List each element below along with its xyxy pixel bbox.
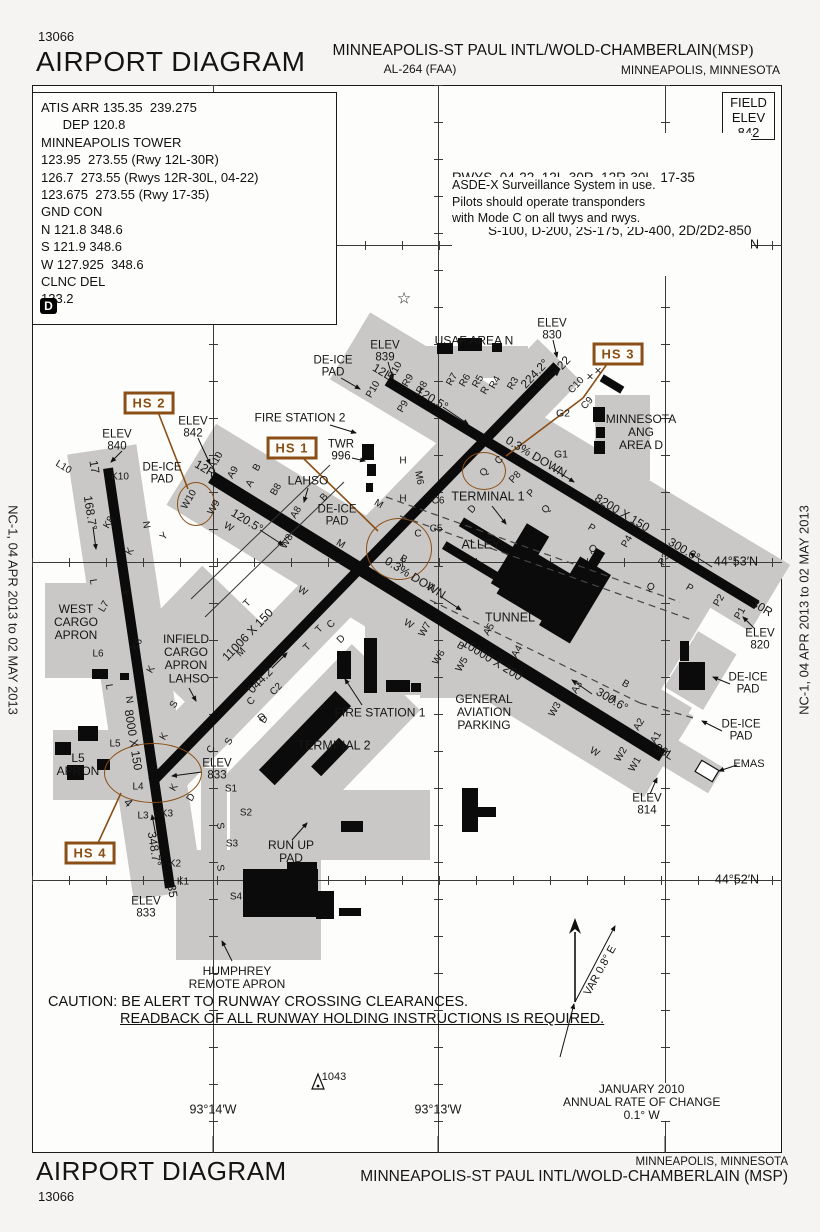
airport-diagram-page: 13066 AIRPORT DIAGRAM MINNEAPOLIS-ST PAU…: [0, 0, 820, 1232]
run-up-pad: RUN UP PAD: [268, 839, 314, 865]
beacon-star-icon: ☆: [397, 290, 411, 307]
ang-stub: [600, 374, 625, 393]
lon-93-13 whitebg: 93°13′W: [415, 1103, 462, 1116]
twy-m6: M6: [412, 470, 425, 485]
twy-h1: H: [399, 457, 406, 468]
obstacle-x1: ×: [586, 371, 593, 384]
twr-996: TWR 996: [328, 439, 354, 464]
elev-814: ELEV 814: [632, 793, 661, 818]
hs4-box: HS 4: [65, 842, 116, 865]
usaf-area-n: USAF AREA N: [435, 335, 514, 348]
elev-820: ELEV 820: [745, 628, 774, 653]
twy-n1: N: [139, 521, 151, 530]
tunnel whitebg: TUNNEL: [485, 611, 535, 624]
caution-line1: CAUTION: BE ALERT TO RUNWAY CROSSING CLE…: [48, 994, 468, 1010]
obstacle-1043: 1043: [322, 1072, 346, 1084]
building: [593, 407, 605, 422]
elev-833-s: ELEV 833: [131, 896, 160, 921]
emas: EMAS: [733, 759, 764, 771]
twy-l3: L3: [137, 812, 148, 823]
edge-text-left: NC-1, 04 APR 2013 to 02 MAY 2013: [6, 505, 21, 715]
edge-text-right: NC-1, 04 APR 2013 to 02 MAY 2013: [797, 505, 812, 715]
lahso-north: LAHSO: [288, 475, 329, 488]
building: [339, 908, 361, 916]
twy-k10: K10: [111, 473, 129, 484]
taxiway-pavement: [230, 790, 430, 860]
twy-g1: G1: [554, 449, 568, 460]
leader-arrow: [702, 721, 722, 731]
twy-d5: D: [336, 634, 349, 647]
infield-cargo-apron whitebg: INFIELD CARGO APRON: [163, 633, 209, 671]
building: [341, 821, 363, 832]
asdex-note: ASDE-X Surveillance System in use. Pilot…: [452, 177, 656, 227]
rwy-num-17: 17: [87, 459, 102, 474]
twy-s1: S1: [225, 785, 237, 796]
annual-rate-label: JANUARY 2010 ANNUAL RATE OF CHANGE 0.1° …: [560, 1083, 723, 1121]
building: [594, 441, 605, 454]
twy-g2: G2: [556, 408, 570, 419]
twy-c2: C: [414, 530, 421, 541]
twy-y1: Y: [159, 531, 171, 543]
twy-c5: C5: [430, 525, 443, 536]
hs2-box: HS 2: [124, 392, 175, 415]
hs1-box: HS 1: [267, 437, 318, 460]
general-aviation-parking whitebg: GENERAL AVIATION PARKING: [455, 693, 512, 731]
twy-l-b: L: [102, 683, 113, 690]
caution-line2: READBACK OF ALL RUNWAY HOLDING INSTRUCTI…: [120, 1011, 604, 1027]
twy-s3: S3: [226, 840, 238, 851]
deice-pad-e1: DE-ICE PAD: [729, 672, 768, 697]
deice-pad-w: DE-ICE PAD: [143, 462, 182, 487]
twy-l5: L5: [109, 740, 120, 751]
building: [316, 891, 334, 919]
building: [468, 807, 496, 817]
building: [337, 651, 351, 679]
twy-s-c: S: [213, 822, 225, 830]
humphrey-remote-apron: HUMPHREY REMOTE APRON: [189, 965, 286, 991]
lahso-infield whitebg: LAHSO: [169, 673, 210, 686]
elev-830: ELEV 830: [537, 318, 566, 343]
building: [596, 427, 605, 438]
building: [243, 869, 318, 917]
building: [386, 680, 410, 692]
obstacle-dot: [317, 1085, 320, 1088]
obstacle-x3: ×: [594, 365, 601, 378]
grid-latitude-line: [32, 876, 782, 885]
d-symbol: D: [40, 298, 57, 314]
lat-44-52 whitebg: 44°52′N: [715, 873, 759, 886]
building: [680, 641, 689, 661]
frequency-list: ATIS ARR 135.35 239.275 DEP 120.8 MINNEA…: [33, 93, 336, 308]
twy-l6: L6: [92, 650, 103, 661]
deice-pad-e2: DE-ICE PAD: [722, 719, 761, 744]
taxiway-pavement: [420, 653, 480, 698]
minnesota-ang: MINNESOTA ANG AREA D: [606, 413, 676, 451]
building: [679, 662, 705, 690]
footer-title: AIRPORT DIAGRAM: [36, 1156, 287, 1187]
fire-station-1 whitebg: FIRE STATION 1: [335, 707, 426, 720]
twy-l-a: L: [86, 578, 97, 585]
elev-842: ELEV 842: [178, 416, 207, 441]
leader-arrow: [330, 425, 356, 433]
lon-93-14 whitebg: 93°14′W: [190, 1103, 237, 1116]
hs3-box: HS 3: [593, 343, 644, 366]
elev-833-mid whitebg: ELEV 833: [202, 758, 231, 783]
fire-station-2: FIRE STATION 2: [255, 412, 346, 425]
city-state-footer: MINNEAPOLIS, MINNESOTA: [635, 1156, 788, 1168]
terminal-1 whitebg: TERMINAL 1: [451, 490, 524, 503]
airport-name-footer: MINNEAPOLIS-ST PAUL INTL/WOLD-CHAMBERLAI…: [360, 1169, 788, 1186]
deice-pad-c: DE-ICE PAD: [318, 504, 357, 529]
deice-pad-nw: DE-ICE PAD: [314, 355, 353, 380]
l5-apron: L5 APRON: [57, 752, 100, 778]
chart-number-bottom: 13066: [38, 1190, 74, 1204]
twy-k1: K1: [177, 878, 189, 889]
building: [362, 444, 374, 460]
twy-c6: C6: [432, 497, 445, 508]
twy-s2: S2: [240, 809, 252, 820]
frequency-box: ATIS ARR 135.35 239.275 DEP 120.8 MINNEA…: [32, 92, 337, 325]
twy-s4: S4: [230, 893, 242, 904]
hotspot-leader: [98, 793, 121, 843]
building: [366, 483, 373, 492]
twy-s-d: S: [213, 864, 225, 872]
terminal-2: TERMINAL 2: [297, 739, 370, 752]
elev-840: ELEV 840: [102, 429, 131, 454]
building: [364, 638, 377, 693]
twy-h2: H: [399, 495, 406, 506]
twy-k2: K2: [169, 860, 181, 871]
building: [367, 464, 376, 476]
building: [78, 726, 98, 741]
north-arrow-icon: [569, 918, 581, 934]
building: [411, 683, 421, 692]
west-cargo-apron: WEST CARGO APRON: [54, 603, 98, 641]
alley whitebg: ALLEY: [462, 538, 501, 551]
building: [120, 673, 129, 680]
lat-44-53 whitebg: 44°53′N: [714, 555, 758, 568]
building: [92, 669, 108, 679]
twy-l4: L4: [132, 783, 143, 794]
twy-k3: K3: [161, 810, 173, 821]
